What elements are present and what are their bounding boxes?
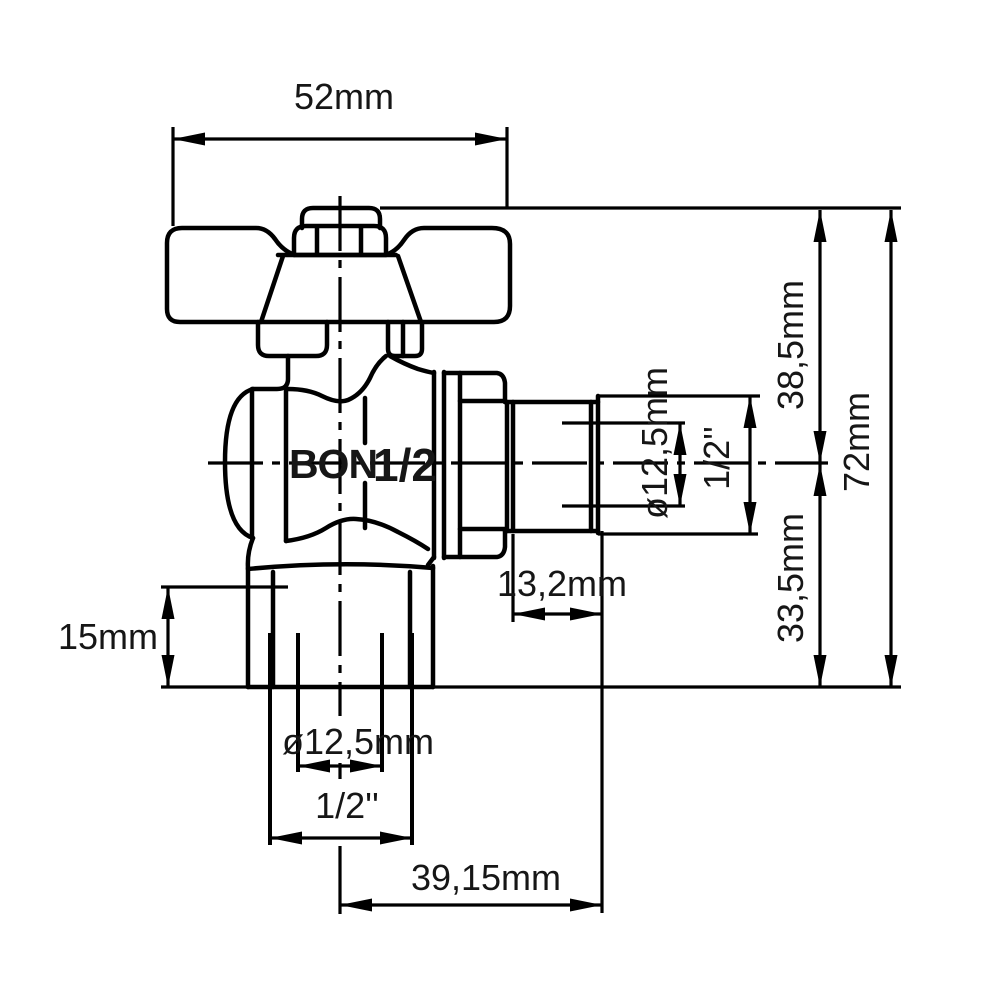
body-brand-marking: BON	[289, 441, 377, 487]
axis-to-port-end-label: 39,15mm	[411, 857, 561, 898]
dimension-lower-height	[814, 464, 827, 687]
handle-width-label: 52mm	[294, 76, 394, 117]
side-port-thread-label: 1/2''	[696, 426, 737, 490]
technical-drawing-page: 52mm 38,5mm 72mm 33,5mm ø12,5mm 1/2'' 13…	[0, 0, 1000, 1000]
bottom-port-thread-label: 1/2''	[315, 785, 379, 826]
side-port-bore-label: ø12,5mm	[634, 367, 675, 519]
angle-valve-dimension-drawing: 52mm 38,5mm 72mm 33,5mm ø12,5mm 1/2'' 13…	[0, 0, 1000, 1000]
side-thread-length-label: 13,2mm	[497, 563, 627, 604]
dimension-upper-height	[814, 210, 827, 463]
upper-height-label: 38,5mm	[770, 280, 811, 410]
right-hex-section	[428, 372, 505, 565]
overall-height-label: 72mm	[836, 392, 877, 492]
lower-height-label: 33,5mm	[770, 513, 811, 643]
body-size-marking: 1/2	[373, 439, 437, 491]
dimension-overall-height	[885, 210, 898, 687]
bottom-port-bore-label: ø12,5mm	[282, 721, 434, 762]
dimension-bottom-port-thread	[270, 832, 412, 845]
bottom-nut-height-label: 15mm	[58, 616, 158, 657]
